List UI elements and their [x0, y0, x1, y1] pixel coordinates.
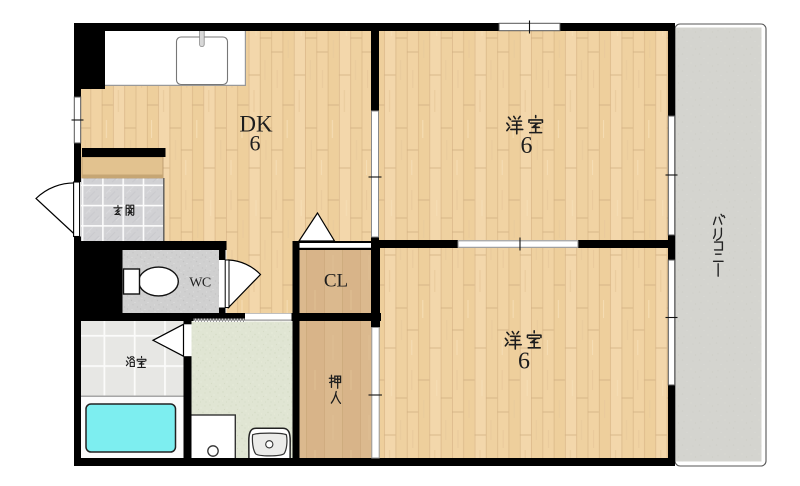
svg-text:WC: WC [189, 275, 211, 290]
svg-text:6: 6 [250, 131, 261, 156]
svg-text:CL: CL [324, 271, 348, 292]
svg-text:6: 6 [518, 349, 530, 375]
svg-text:6: 6 [521, 133, 533, 159]
